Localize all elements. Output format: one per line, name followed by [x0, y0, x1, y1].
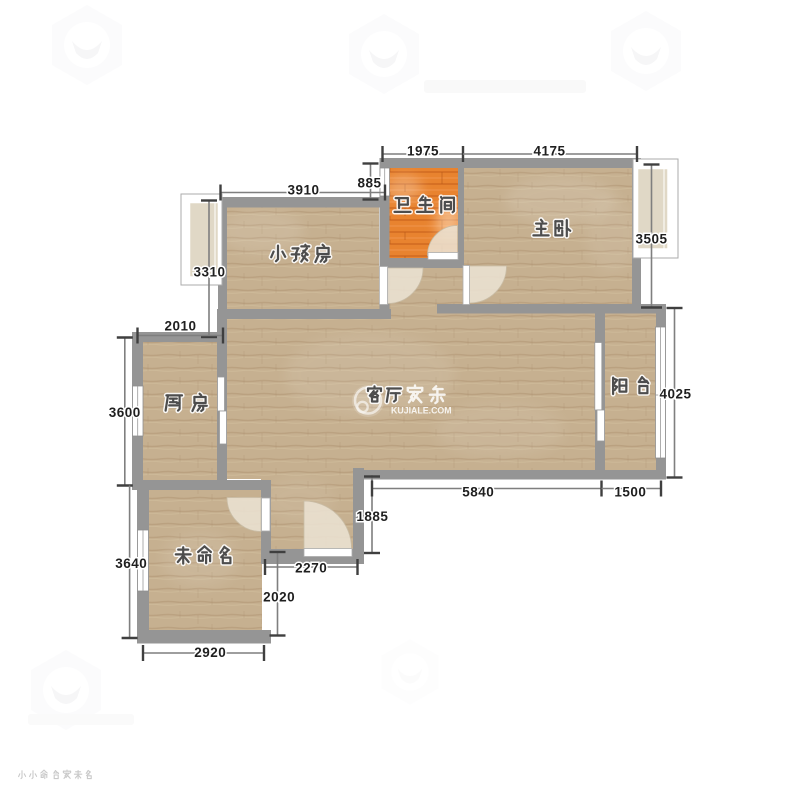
svg-text:5840: 5840 [462, 485, 494, 500]
svg-text:3505: 3505 [635, 232, 667, 247]
svg-text:1885: 1885 [356, 509, 388, 524]
svg-text:2270: 2270 [295, 561, 327, 576]
svg-text:2020: 2020 [263, 590, 295, 605]
svg-text:1500: 1500 [614, 485, 646, 500]
svg-text:4175: 4175 [533, 144, 565, 159]
svg-text:1975: 1975 [407, 144, 439, 159]
svg-text:3640: 3640 [115, 556, 147, 571]
svg-text:3600: 3600 [109, 405, 141, 420]
svg-text:4025: 4025 [659, 387, 691, 402]
svg-text:2920: 2920 [194, 645, 226, 660]
svg-text:KUJIALE.COM: KUJIALE.COM [391, 406, 452, 416]
svg-text:885: 885 [357, 176, 381, 191]
svg-text:2010: 2010 [164, 319, 196, 334]
svg-text:3910: 3910 [287, 183, 319, 198]
svg-text:3310: 3310 [193, 265, 225, 280]
